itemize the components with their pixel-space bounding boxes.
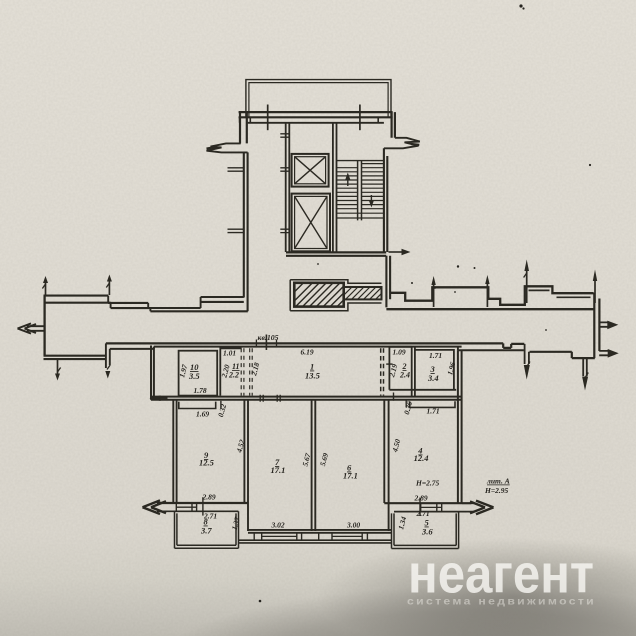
svg-text:12.5: 12.5 (199, 457, 215, 467)
svg-text:H=2.95: H=2.95 (484, 486, 508, 495)
svg-text:0.36: 0.36 (402, 400, 414, 415)
svg-text:система недвижимости: система недвижимости (407, 595, 596, 607)
svg-text:6.19: 6.19 (301, 348, 314, 357)
svg-text:лит. А: лит. А (486, 477, 510, 486)
svg-text:2.89: 2.89 (202, 493, 216, 502)
svg-text:12.4: 12.4 (414, 453, 429, 463)
svg-text:1.37: 1.37 (230, 516, 242, 531)
svg-text:2.71: 2.71 (416, 509, 430, 518)
svg-text:17.1: 17.1 (343, 471, 358, 481)
svg-text:1.01: 1.01 (223, 349, 236, 358)
svg-text:0.32: 0.32 (216, 403, 228, 418)
svg-text:2.4: 2.4 (399, 371, 410, 380)
svg-text:1.71: 1.71 (427, 407, 440, 416)
svg-text:3.7: 3.7 (200, 526, 212, 536)
svg-text:2.71: 2.71 (203, 512, 217, 521)
svg-text:3.00: 3.00 (346, 521, 360, 530)
svg-text:2.18: 2.18 (249, 361, 261, 377)
svg-text:1.78: 1.78 (194, 386, 207, 395)
svg-text:13.5: 13.5 (305, 371, 321, 381)
svg-text:17.1: 17.1 (271, 465, 286, 475)
svg-text:1.34: 1.34 (396, 515, 408, 530)
svg-text:3.02: 3.02 (271, 521, 285, 530)
svg-text:H=2.75: H=2.75 (415, 478, 439, 487)
svg-text:1.09: 1.09 (393, 348, 406, 357)
svg-text:3.4: 3.4 (427, 373, 439, 383)
svg-text:3.5: 3.5 (188, 371, 200, 381)
svg-text:1.71: 1.71 (429, 351, 442, 360)
svg-text:3.6: 3.6 (421, 527, 433, 537)
svg-text:5.69: 5.69 (318, 452, 330, 467)
svg-text:1.96: 1.96 (445, 361, 457, 376)
svg-text:4.50: 4.50 (390, 438, 402, 454)
svg-text:2.89: 2.89 (414, 494, 428, 503)
svg-text:1.69: 1.69 (196, 409, 209, 418)
svg-text:кв.105: кв.105 (258, 333, 279, 342)
